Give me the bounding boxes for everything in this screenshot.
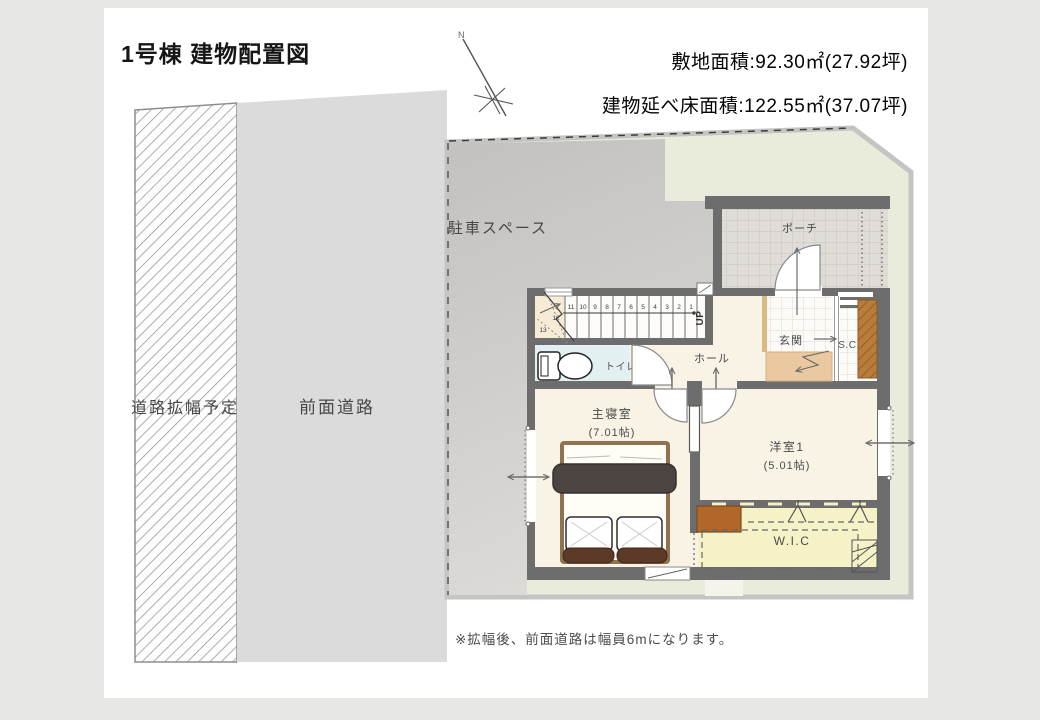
bed-bolster: [617, 548, 667, 563]
floor-area-text: 建物延べ床面積:122.55㎡(37.07坪): [602, 94, 908, 117]
stairs-up-label: UP: [695, 311, 706, 326]
stair-number: 8: [605, 304, 609, 311]
stair-number: 3: [665, 304, 669, 311]
bed-bolster: [563, 548, 614, 563]
stair-number: 9: [593, 304, 597, 311]
wic-label: W.I.C: [774, 534, 811, 548]
site-area-text: 敷地面積:92.30㎡(27.92坪): [671, 50, 908, 73]
western-room1-label: 洋室1: [769, 439, 804, 454]
master-bedroom-label: 主寝室: [592, 406, 633, 421]
entrance-label: 玄関: [779, 333, 803, 347]
stair-number: 10: [579, 304, 587, 311]
page-title: 1号棟 建物配置図: [121, 41, 310, 67]
stair-number: 11: [568, 304, 575, 311]
north-label: N: [458, 30, 465, 40]
stair-number: 2: [677, 304, 681, 311]
shoe-closet-shelf: [858, 300, 877, 378]
entrance-step: [766, 352, 832, 381]
parking-label: 駐車スペース: [448, 220, 548, 237]
western-room1-size: (5.01帖): [764, 459, 811, 472]
stair-number: 7: [617, 304, 621, 311]
shoe-closet-label: S.C.: [838, 340, 859, 351]
toilet-bowl: [558, 353, 592, 379]
stair-number: 1: [689, 304, 693, 311]
road-widening-label: 道路拡幅予定: [131, 399, 239, 417]
porch-label: ポーチ: [782, 222, 818, 235]
master-bedroom-size: (7.01帖): [589, 426, 636, 439]
bottom-window: [645, 567, 690, 580]
front-road-label: 前面道路: [299, 398, 375, 417]
road-widening-strip: 道路拡幅予定: [131, 103, 239, 662]
site-plan-canvas: 1号棟 建物配置図 敷地面積:92.30㎡(27.92坪) 建物延べ床面積:12…: [0, 0, 1040, 720]
floor-plan-page: 1号棟 建物配置図 敷地面積:92.30㎡(27.92坪) 建物延べ床面積:12…: [0, 0, 1040, 720]
approach-strip: [705, 578, 743, 596]
bed: [553, 443, 676, 563]
stair-number: 4: [653, 304, 657, 311]
bed-blanket: [553, 464, 676, 493]
front-road: 前面道路: [237, 90, 447, 662]
stair-number: 5: [641, 304, 645, 311]
stair-number: 13: [539, 327, 547, 334]
hall-label: ホール: [694, 352, 730, 365]
stair-number: 6: [629, 304, 633, 311]
note-text: ※拡幅後、前面道路は幅員6mになります。: [455, 631, 733, 647]
wic-dresser: [697, 506, 741, 532]
